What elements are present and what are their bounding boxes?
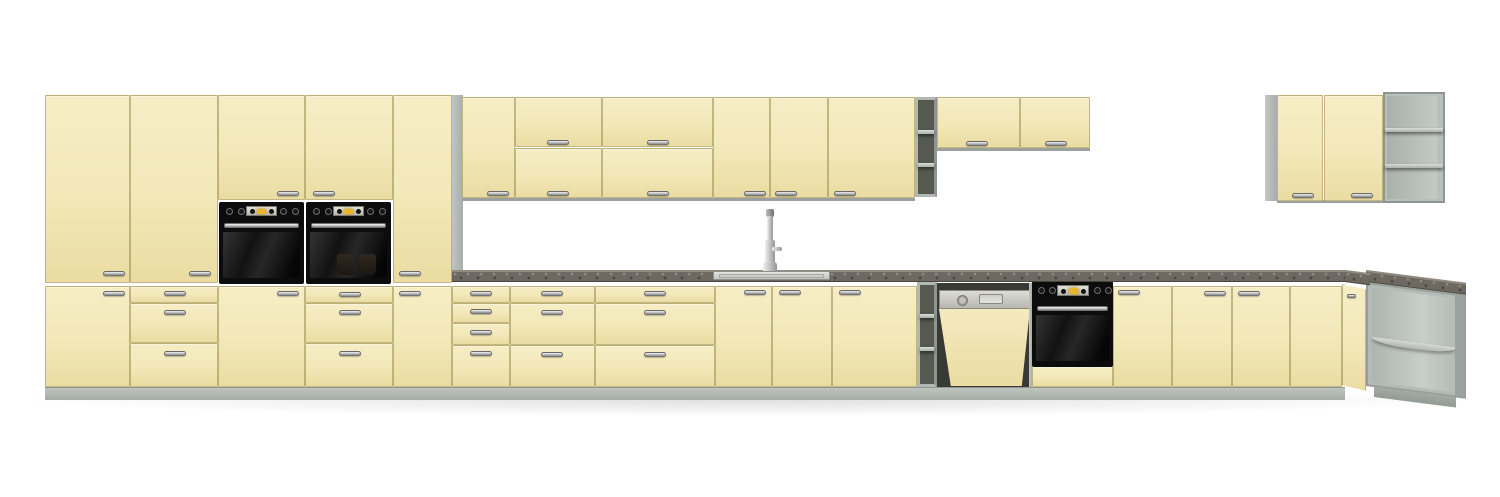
door-handle	[277, 291, 299, 296]
door-handle	[313, 191, 335, 196]
faucet-base	[763, 262, 777, 271]
oven-door-handle	[224, 223, 299, 228]
dishwasher-handle-recess	[979, 294, 1003, 304]
corner-side-panel	[1455, 295, 1464, 396]
open-wall-shelf-column	[915, 97, 937, 197]
shelf	[918, 163, 934, 167]
tall-run-plinth	[45, 387, 452, 400]
oven-door-handle	[1037, 306, 1108, 311]
pot-silhouette	[359, 254, 376, 275]
tall-door	[393, 95, 452, 283]
drawer-front	[595, 303, 715, 345]
base-oven	[1032, 281, 1113, 367]
shelf	[1385, 164, 1443, 168]
wall-cabinet-side-panel	[1265, 95, 1277, 201]
door-handle	[1347, 294, 1356, 298]
kitchen-render	[0, 0, 1500, 497]
corner-blind-panel	[1290, 286, 1342, 387]
drawer-front	[130, 286, 218, 303]
door-handle	[547, 140, 569, 145]
shelf	[1385, 128, 1443, 132]
door-handle	[1045, 141, 1067, 146]
wall-flap-door	[515, 97, 602, 147]
wall-flap-door	[515, 148, 602, 198]
oven-knob	[379, 208, 386, 215]
oven-knob	[313, 208, 320, 215]
drawer-front	[130, 343, 218, 387]
drawer-handle	[164, 291, 186, 296]
drawer-front	[130, 303, 218, 343]
drawer-handle	[339, 292, 361, 297]
drawer-handle	[470, 351, 492, 356]
drawer-handle	[164, 351, 186, 356]
corner-shelf-frame	[1366, 282, 1466, 399]
wall-door	[828, 97, 915, 198]
tall-lower-door	[45, 286, 130, 387]
oven-knob	[226, 208, 233, 215]
drawer-front	[595, 345, 715, 387]
drawer-front	[452, 323, 510, 345]
drawer-front	[510, 303, 595, 345]
sink	[713, 271, 830, 280]
door-handle	[647, 191, 669, 196]
oven-knob	[367, 208, 374, 215]
door-handle	[189, 271, 211, 276]
oven-knob	[1049, 287, 1056, 294]
oven-door-glass	[223, 232, 300, 278]
shelf-interior	[1387, 96, 1437, 199]
dishwasher-front-panel	[939, 309, 1030, 386]
drawer-handle	[644, 310, 666, 315]
door-handle	[1292, 193, 1314, 198]
oven-button	[1081, 289, 1086, 294]
countertop-corner-transition	[1345, 270, 1370, 285]
dishwasher-dial	[957, 295, 968, 306]
door-handle	[103, 271, 125, 276]
drawer-handle	[470, 291, 492, 296]
oven-door-glass	[1036, 315, 1109, 361]
wall-door	[937, 97, 1020, 148]
drawer-handle	[644, 352, 666, 357]
drawer-front	[452, 345, 510, 387]
sink-bowl-rim	[719, 274, 824, 278]
door-handle	[839, 290, 861, 295]
under-oven-front	[1032, 366, 1113, 387]
wall-door	[770, 97, 828, 198]
drawer-handle	[541, 291, 563, 296]
oven-knob	[325, 208, 332, 215]
oven-knob	[1094, 287, 1101, 294]
oven-display	[344, 209, 353, 214]
drawer-front	[452, 286, 510, 303]
sink-base-door	[715, 286, 772, 387]
door-handle	[1238, 291, 1260, 296]
corner-angled-door	[1342, 284, 1366, 394]
base-door	[1232, 286, 1290, 387]
door-handle	[1351, 193, 1373, 198]
door-handle	[1118, 290, 1140, 295]
tall-door	[130, 95, 218, 283]
oven-control-strip	[1057, 285, 1089, 296]
dishwasher-control-strip	[939, 290, 1030, 309]
drawer-front	[452, 303, 510, 323]
wall-run-bottom-edge	[937, 148, 1090, 151]
shelf	[920, 314, 934, 318]
wall-door	[1277, 95, 1323, 201]
door-handle	[779, 290, 801, 295]
door-handle	[547, 191, 569, 196]
door-handle	[103, 291, 125, 296]
oven-knob	[292, 208, 299, 215]
door-handle	[775, 191, 797, 196]
door-handle	[647, 140, 669, 145]
drawer-front	[305, 303, 393, 343]
oven-button	[250, 209, 255, 214]
door-handle	[399, 271, 421, 276]
open-corner-wall-shelf	[1383, 92, 1445, 203]
base-door	[832, 286, 917, 387]
drawer-front	[510, 286, 595, 303]
oven-knob	[238, 208, 245, 215]
faucet-hose	[767, 216, 773, 242]
wall-flap-door	[602, 148, 713, 198]
oven-button	[356, 209, 361, 214]
oven-display	[257, 209, 266, 214]
door-handle	[399, 291, 421, 296]
oven-housing-bottom-door	[218, 286, 305, 387]
door-handle	[744, 191, 766, 196]
wall-door	[1020, 97, 1090, 148]
tall-door	[45, 95, 130, 283]
wall-door	[462, 97, 515, 198]
shelf	[920, 347, 934, 351]
oven-control-strip	[333, 206, 364, 216]
drawer-front	[510, 345, 595, 387]
pot-silhouette	[337, 254, 354, 275]
base-door	[1172, 286, 1232, 387]
open-base-shelf-column	[917, 282, 937, 387]
door-handle	[744, 290, 766, 295]
drawer-front	[305, 286, 393, 303]
open-corner-base-unit	[1366, 270, 1466, 411]
oven-button	[269, 209, 274, 214]
oven-control-strip	[246, 206, 277, 216]
drawer-handle	[541, 352, 563, 357]
base-door	[1113, 286, 1172, 387]
oven-knob	[1038, 287, 1045, 294]
oven-button	[1061, 289, 1066, 294]
drawer-handle	[644, 291, 666, 296]
drawer-handle	[339, 310, 361, 315]
wall-door	[713, 97, 770, 198]
wall-oven-right	[306, 202, 391, 284]
drawer-handle	[541, 310, 563, 315]
faucet-lever	[772, 247, 782, 251]
door-handle	[277, 191, 299, 196]
door-handle	[834, 191, 856, 196]
drawer-front	[595, 286, 715, 303]
oven-button	[337, 209, 342, 214]
wall-oven-left	[219, 202, 304, 284]
tall-lower-door	[393, 286, 452, 387]
wall-flap-door	[602, 97, 713, 147]
wall-door	[1324, 95, 1383, 201]
oven-door-handle	[311, 223, 386, 228]
drawer-handle	[164, 310, 186, 315]
shelf	[918, 130, 934, 134]
faucet-body	[765, 240, 775, 263]
oven-display	[1069, 288, 1078, 294]
oven-door-glass	[310, 232, 387, 278]
base-run-plinth	[452, 387, 1345, 400]
door-handle	[487, 191, 509, 196]
sink-base-door	[772, 286, 832, 387]
door-handle	[1204, 291, 1226, 296]
door-handle	[966, 141, 988, 146]
drawer-handle	[470, 309, 492, 314]
drawer-front	[305, 343, 393, 387]
oven-housing-top-door	[305, 95, 393, 200]
drawer-handle	[470, 330, 492, 335]
oven-knob	[1105, 287, 1112, 294]
countertop	[452, 270, 1345, 282]
wall-run-bottom-edge	[462, 198, 915, 201]
dishwasher	[937, 283, 1032, 387]
drawer-handle	[339, 351, 361, 356]
oven-knob	[280, 208, 287, 215]
oven-housing-top-door	[218, 95, 305, 200]
